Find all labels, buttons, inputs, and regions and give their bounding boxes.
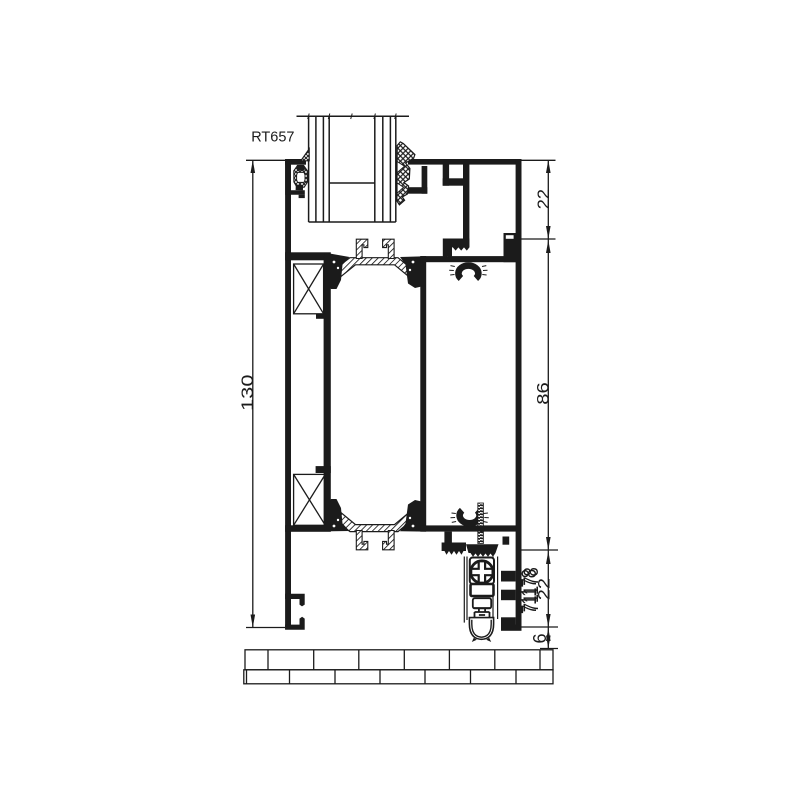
svg-text:6: 6 [530,633,550,643]
svg-text:RT657: RT657 [251,129,294,145]
svg-text:86: 86 [534,382,553,405]
svg-text:22: 22 [534,189,553,209]
svg-text:130: 130 [238,375,257,412]
svg-text:22: 22 [535,578,554,600]
